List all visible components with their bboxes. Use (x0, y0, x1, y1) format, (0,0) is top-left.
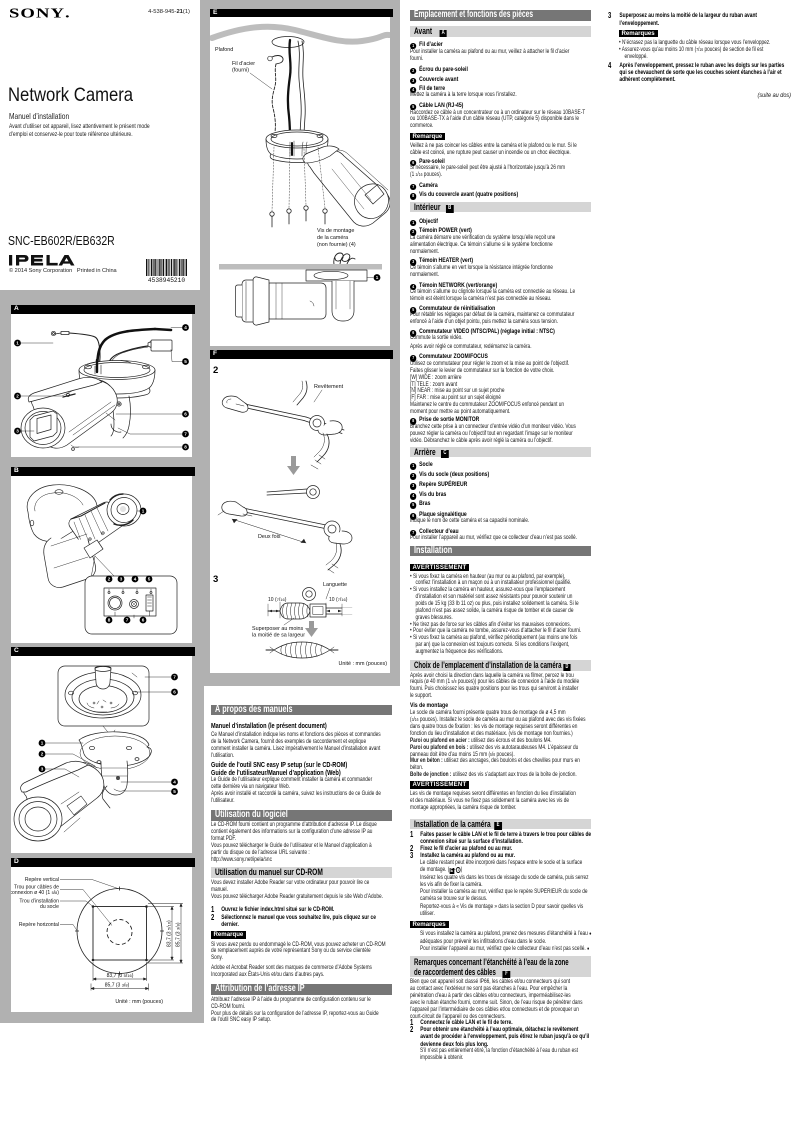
svg-text:Superposer au moins: Superposer au moins (252, 626, 304, 632)
svg-text:85,7 (3 3/8): 85,7 (3 3/8) (105, 982, 130, 988)
svg-text:Fil d’acier: Fil d’acier (232, 61, 255, 67)
svg-text:83,7 (3 5/16): 83,7 (3 5/16) (167, 919, 173, 946)
svg-text:Deux fois: Deux fois (258, 534, 281, 540)
svg-text:Repère vertical: Repère vertical (25, 876, 59, 882)
svg-text:Languette: Languette (323, 582, 347, 588)
svg-text:8: 8 (184, 444, 187, 449)
svg-text:3: 3 (120, 576, 123, 581)
svg-text:83,7 (3 5/16): 83,7 (3 5/16) (107, 973, 134, 979)
svg-text:7: 7 (126, 617, 129, 622)
svg-text:3: 3 (213, 574, 218, 585)
svg-text:4: 4 (173, 779, 176, 784)
svg-text:5: 5 (173, 789, 176, 794)
svg-text:2: 2 (41, 751, 44, 756)
svg-text:connexion ø 40 (1 5/8): connexion ø 40 (1 5/8) (11, 889, 59, 895)
svg-text:la moitié de sa largeur: la moitié de sa largeur (252, 632, 305, 638)
svg-text:4: 4 (134, 576, 137, 581)
svg-text:de la caméra: de la caméra (317, 235, 348, 241)
svg-text:(fourni): (fourni) (232, 68, 249, 74)
svg-text:1: 1 (41, 740, 44, 745)
svg-text:1: 1 (142, 508, 145, 513)
svg-text:10 (7/16): 10 (7/16) (268, 597, 287, 603)
svg-text:7: 7 (184, 431, 187, 436)
svg-text:2: 2 (108, 576, 111, 581)
svg-text:(non fournie) (4): (non fournie) (4) (317, 242, 356, 248)
svg-text:2: 2 (16, 393, 19, 398)
svg-text:6: 6 (184, 411, 187, 416)
svg-text:1: 1 (376, 275, 379, 280)
svg-text:Repère horizontal: Repère horizontal (19, 921, 59, 927)
svg-text:6: 6 (173, 689, 176, 694)
svg-text:10 (7/16): 10 (7/16) (329, 597, 348, 603)
svg-text:6: 6 (142, 617, 145, 622)
svg-text:Vis de montage: Vis de montage (317, 228, 354, 234)
svg-text:Plafond: Plafond (215, 47, 233, 53)
svg-text:du socle: du socle (40, 903, 59, 909)
svg-text:Unité : mm (pouces): Unité : mm (pouces) (115, 999, 163, 1005)
svg-text:1: 1 (16, 340, 19, 345)
svg-text:5: 5 (148, 576, 151, 581)
svg-text:Revêtement: Revêtement (314, 384, 344, 390)
svg-text:4: 4 (184, 325, 187, 330)
svg-text:2: 2 (213, 365, 218, 376)
svg-text:8: 8 (108, 617, 111, 622)
svg-text:3: 3 (41, 766, 44, 771)
svg-text:7: 7 (173, 674, 176, 679)
svg-text:3: 3 (16, 428, 19, 433)
svg-text:5: 5 (184, 359, 187, 364)
svg-text:85,7 (3 3/8): 85,7 (3 3/8) (176, 922, 182, 947)
svg-text:Unité : mm (pouces): Unité : mm (pouces) (338, 661, 387, 667)
